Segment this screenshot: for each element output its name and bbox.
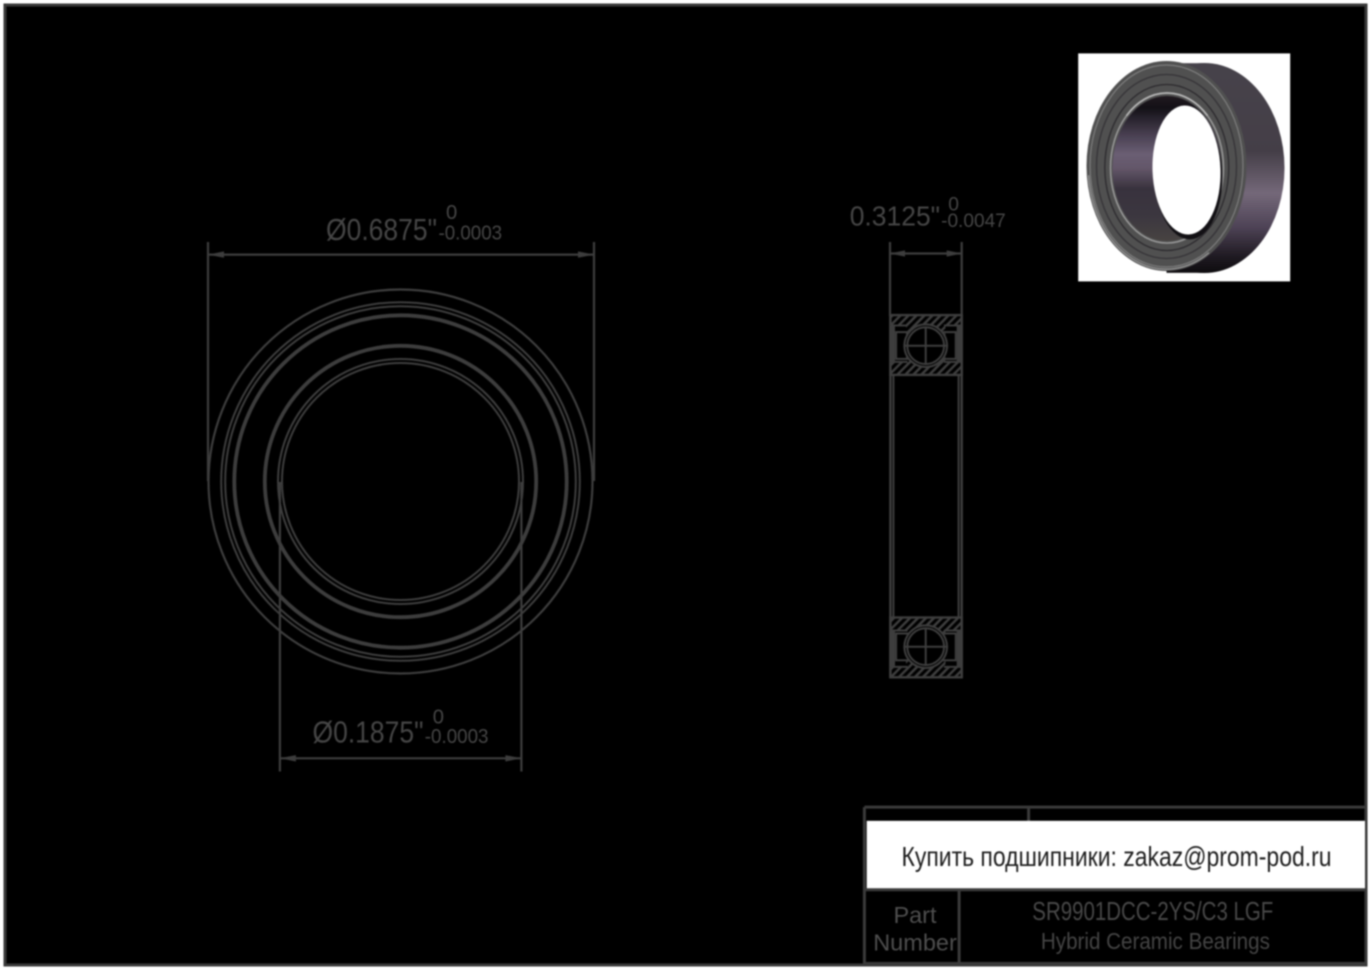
svg-text:-0.0047: -0.0047 — [941, 211, 1006, 232]
svg-text:0: 0 — [446, 202, 457, 224]
svg-text:-0.0003: -0.0003 — [425, 726, 489, 748]
svg-text:-0.0003: -0.0003 — [439, 223, 503, 245]
svg-text:Number: Number — [873, 930, 957, 956]
svg-text:0: 0 — [433, 706, 444, 728]
svg-text:Part: Part — [893, 902, 937, 928]
svg-text:Купить подшипники: zakaz@prom-: Купить подшипники: zakaz@prom-pod.ru — [902, 841, 1332, 872]
svg-text:Hybrid Ceramic Bearings: Hybrid Ceramic Bearings — [1041, 928, 1270, 954]
svg-text:SR9901DCC-2YS/C3 LGF: SR9901DCC-2YS/C3 LGF — [1032, 896, 1273, 926]
svg-text:0.3125": 0.3125" — [850, 201, 940, 232]
svg-text:Ø0.1875": Ø0.1875" — [313, 716, 424, 750]
svg-text:Ø0.6875": Ø0.6875" — [326, 213, 437, 247]
